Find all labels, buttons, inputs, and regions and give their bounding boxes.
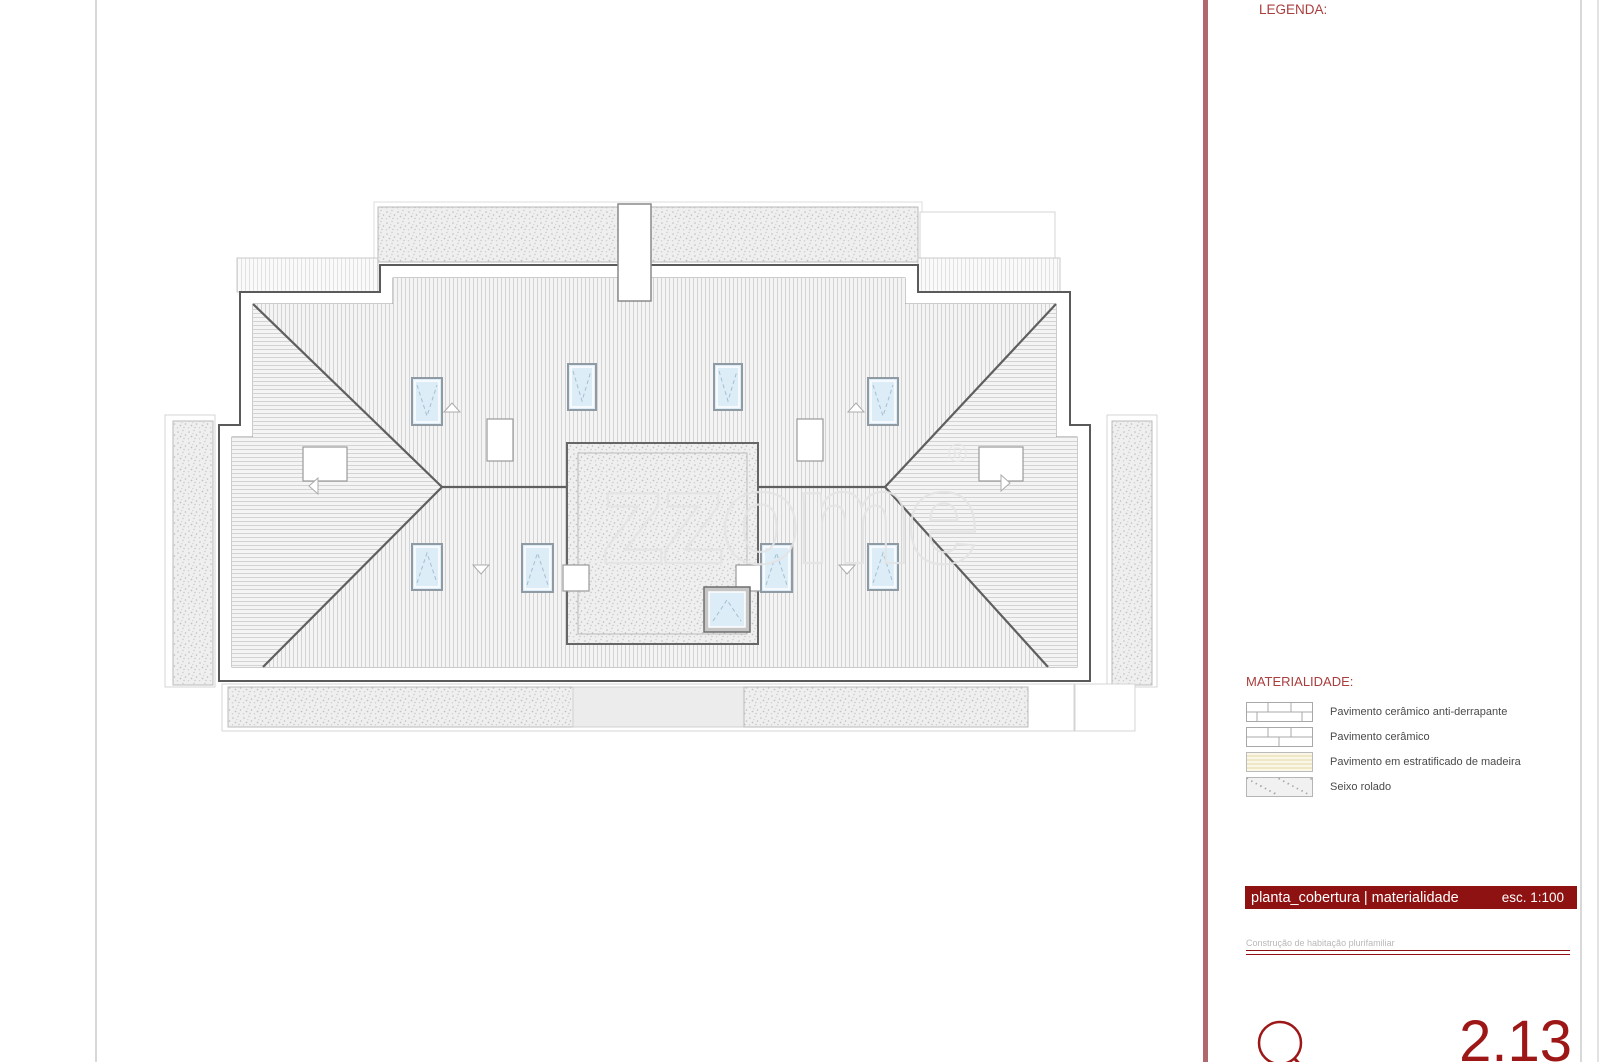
material-swatch-tile-offset <box>1246 702 1313 722</box>
sheet-right-inner-border <box>1580 0 1582 1062</box>
watermark-text: zzome <box>600 444 975 591</box>
sheet-right-border <box>1597 0 1599 1062</box>
materiality-title: MATERIALIDADE: <box>1246 674 1353 689</box>
skylight <box>522 544 553 592</box>
panel-accent-band <box>1203 0 1208 1062</box>
legend-row: Pavimento em estratificado de madeira <box>1246 752 1576 772</box>
drawing-sheet: zzome ® LEGENDA: MATERIALIDADE: Paviment… <box>0 0 1600 1062</box>
terrace-skylight <box>704 587 750 632</box>
skylight <box>412 544 442 590</box>
material-label: Pavimento em estratificado de madeira <box>1330 756 1521 768</box>
terrace-notch <box>563 565 589 591</box>
sheet-number: 2.13 <box>1330 1013 1572 1062</box>
legend-row: Pavimento cerâmico anti-derrapante <box>1246 702 1576 722</box>
material-swatch-stipple <box>1246 777 1313 797</box>
watermark-registered-icon: ® <box>948 438 967 468</box>
skylight <box>714 364 742 410</box>
legend-row: Seixo rolado <box>1246 777 1576 797</box>
material-label: Pavimento cerâmico anti-derrapante <box>1330 706 1507 718</box>
material-label: Seixo rolado <box>1330 781 1391 793</box>
material-label: Pavimento cerâmico <box>1330 731 1430 743</box>
bottom-gravel-bands <box>222 684 1135 731</box>
project-name: Construção de habitação plurifamiliar <box>1246 938 1395 948</box>
roof-vent <box>303 447 347 481</box>
watermark: zzome ® <box>600 438 975 591</box>
project-rule <box>1246 950 1570 955</box>
material-swatch-tile <box>1246 727 1313 747</box>
title-bar: planta_cobertura | materialidade esc. 1:… <box>1245 886 1577 909</box>
legend-title: LEGENDA: <box>1259 2 1327 17</box>
skylight <box>412 378 442 425</box>
logo-icon <box>1259 1022 1307 1062</box>
material-swatch-wood-laminate <box>1246 752 1313 772</box>
sheet-left-border <box>95 0 97 1062</box>
drawing-title: planta_cobertura | materialidade <box>1251 890 1502 906</box>
legend-row: Pavimento cerâmico <box>1246 727 1576 747</box>
skylight <box>868 378 898 425</box>
materiality-list: Pavimento cerâmico anti-derrapantePavime… <box>1246 702 1576 802</box>
roof-vent <box>487 419 513 461</box>
skylight <box>568 364 596 410</box>
drawing-scale: esc. 1:100 <box>1502 890 1564 905</box>
chimney <box>618 204 651 301</box>
